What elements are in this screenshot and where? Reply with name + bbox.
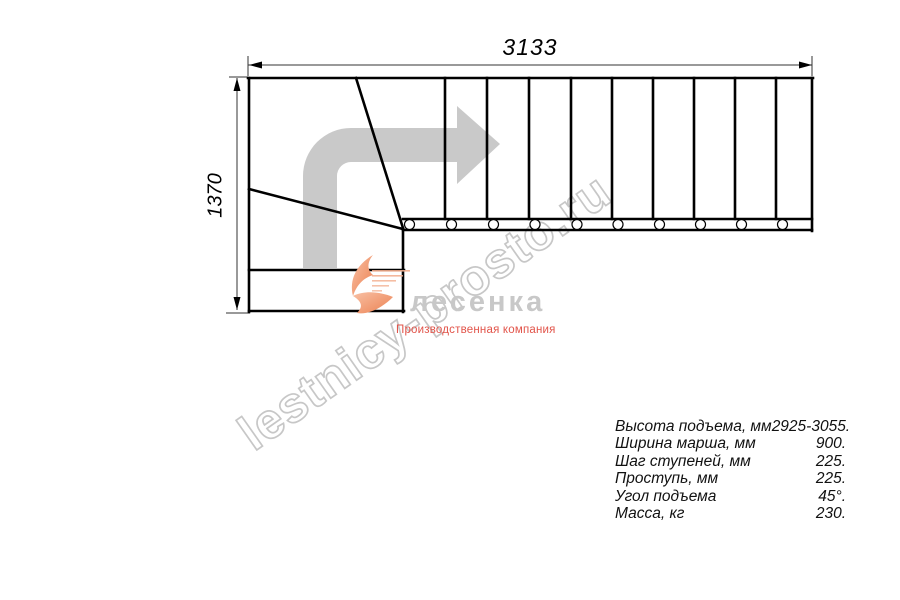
spec-row: Проступь, мм 225. (615, 470, 846, 487)
logo-name: лесенка (410, 288, 545, 317)
spec-row: Шаг ступеней, мм 225. (615, 453, 846, 470)
logo-tagline: Производственная компания (396, 324, 556, 336)
height-dimension-label: 1370 (205, 146, 228, 246)
company-logo: лесенка Производственная компания (340, 250, 570, 345)
width-dimension-label: 3133 (470, 34, 590, 61)
logo-speed-lines (372, 270, 410, 292)
spec-value: 230. (816, 505, 846, 522)
spec-label: Проступь, мм (615, 470, 718, 487)
spec-label: Высота подъема, мм (615, 418, 772, 435)
staircase-drawing-canvas: lestnicy-prosto.ru (0, 0, 900, 600)
spec-value: 225. (816, 470, 846, 487)
spec-value: 225. (816, 453, 846, 470)
baluster-circles (405, 220, 788, 230)
spec-row: Высота подъема, мм 2925-3055. (615, 418, 846, 435)
specs-table: Высота подъема, мм 2925-3055. Ширина мар… (615, 418, 846, 522)
spec-row: Ширина марша, мм 900. (615, 435, 846, 452)
logo-swoosh-icon (340, 250, 410, 320)
spec-label: Шаг ступеней, мм (615, 453, 751, 470)
spec-label: Угол подъема (615, 488, 716, 505)
spec-label: Ширина марша, мм (615, 435, 756, 452)
direction-arrow (303, 106, 500, 268)
spec-label: Масса, кг (615, 505, 684, 522)
spec-value: 900. (816, 435, 846, 452)
spec-row: Масса, кг 230. (615, 505, 846, 522)
spec-value: 45°. (818, 488, 846, 505)
spec-value: 2925-3055. (772, 418, 850, 435)
spec-row: Угол подъема 45°. (615, 488, 846, 505)
